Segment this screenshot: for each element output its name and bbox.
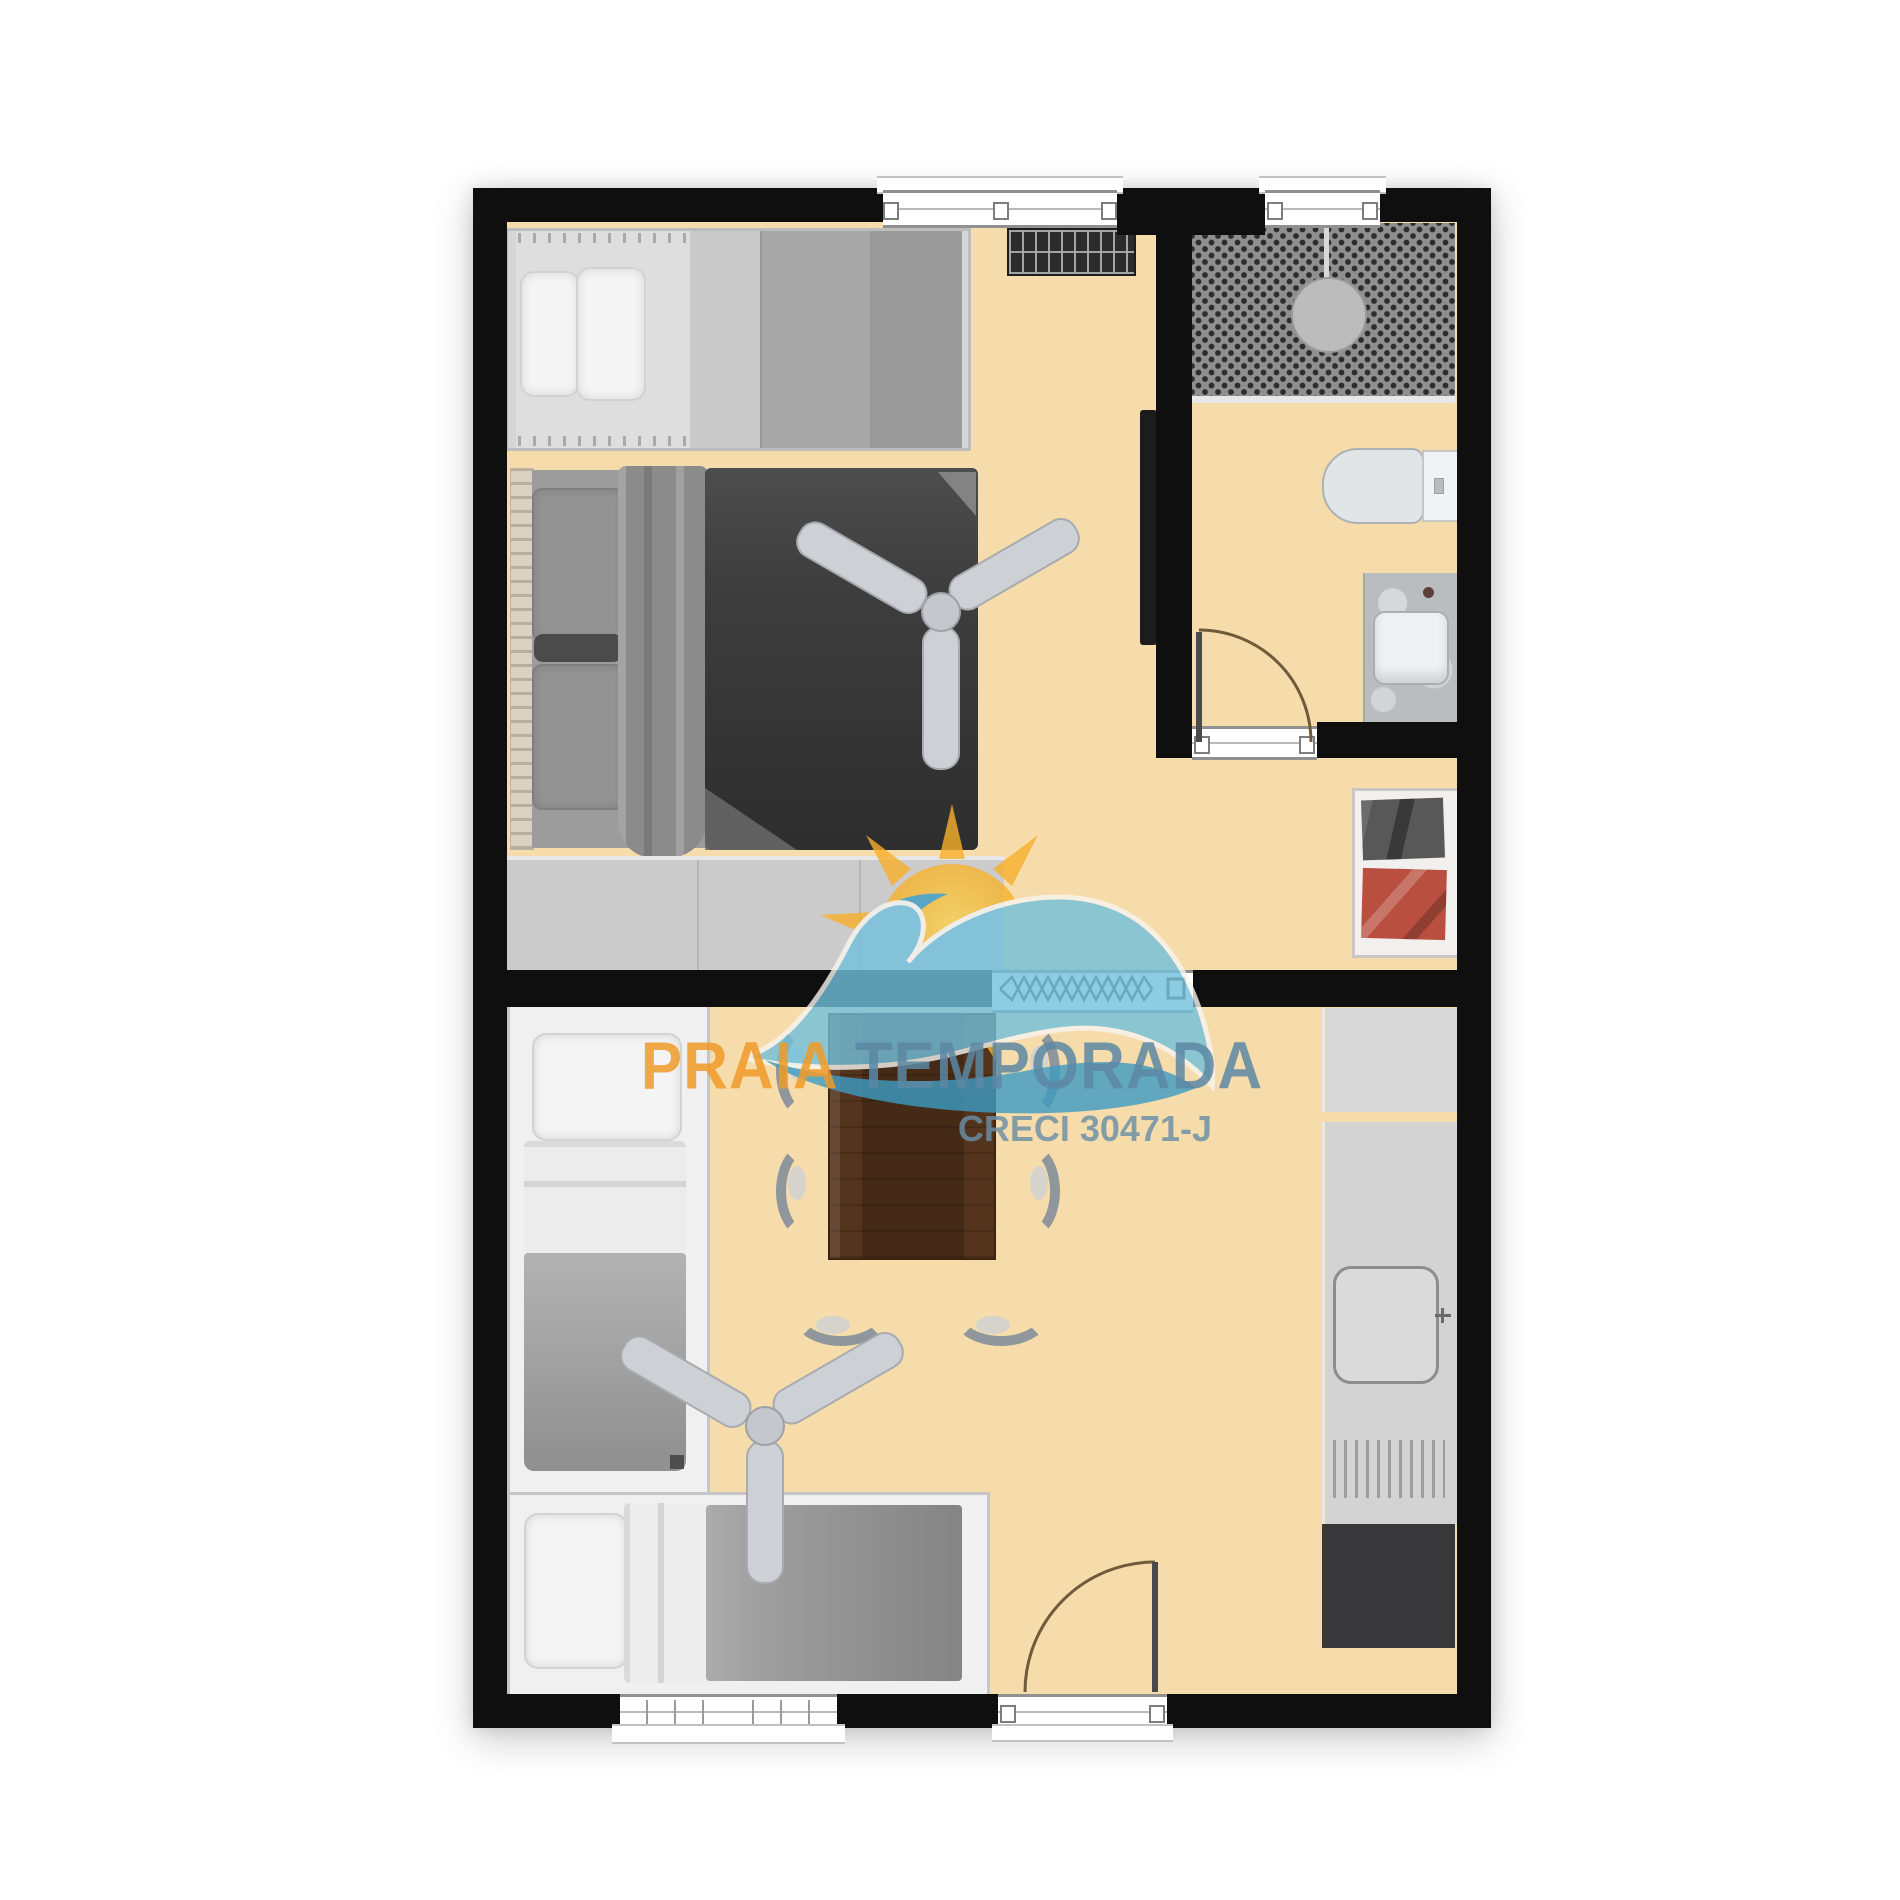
toilet-tank: [1422, 450, 1459, 522]
drying-rack-icon: [1333, 1440, 1445, 1498]
sink-basin: [1373, 611, 1449, 685]
sink-vanity: [1363, 573, 1457, 722]
brand-second-word: TEMPORADA: [855, 1029, 1264, 1104]
watermark-brand-text: PRAIA TEMPORADA: [632, 1034, 1272, 1101]
headboard: [510, 468, 534, 850]
tv-icon: [1140, 410, 1157, 645]
watermark-license-text: CRECI 30471-J: [900, 1108, 1212, 1150]
kitchen-counter: [1322, 1122, 1458, 1524]
mid-wall-left: [473, 970, 992, 1007]
pillow: [532, 664, 624, 810]
red-clothes: [1361, 868, 1447, 940]
mid-wall-right: [1193, 970, 1491, 1007]
window-top-bath: [1265, 190, 1380, 228]
folded-sheet: [524, 1141, 686, 1253]
gray-clothes: [1361, 798, 1445, 861]
closet-shelf: [1352, 788, 1461, 958]
accordion-window: [992, 970, 1193, 1013]
brand-first-word: PRAIA: [641, 1029, 837, 1104]
dresser: [507, 856, 1004, 976]
pillow: [524, 1513, 628, 1669]
chair-icon: [776, 1142, 840, 1240]
double-bed: [510, 466, 980, 850]
window-sill: [612, 1724, 845, 1744]
draped-blanket: [618, 466, 708, 858]
bathroom-wall: [1156, 222, 1192, 758]
floorplan-image: PRAIA TEMPORADA CRECI 30471-J: [0, 0, 1900, 1900]
radiator-grille-icon: [1007, 228, 1136, 276]
shower-head-icon: [1291, 277, 1367, 353]
toilet-bowl: [1322, 448, 1424, 524]
window-top-main: [883, 190, 1117, 228]
chair-icon: [952, 1282, 1050, 1346]
bathroom-door-opening: [1192, 726, 1317, 760]
faucet-icon: [1423, 587, 1434, 598]
chair-icon: [996, 1142, 1060, 1240]
gray-duvet: [706, 1505, 962, 1681]
door-sill: [992, 1724, 1173, 1742]
single-bed-top: [505, 228, 971, 451]
pillow: [520, 271, 580, 397]
kitchen-sink: [1333, 1266, 1439, 1384]
dark-appliance: [1322, 1524, 1455, 1648]
pillow: [576, 267, 646, 401]
pillow: [532, 488, 624, 642]
folded-sheet: [624, 1503, 714, 1683]
kitchen-counter-upper: [1322, 1008, 1458, 1112]
accent-pillow: [534, 634, 622, 662]
